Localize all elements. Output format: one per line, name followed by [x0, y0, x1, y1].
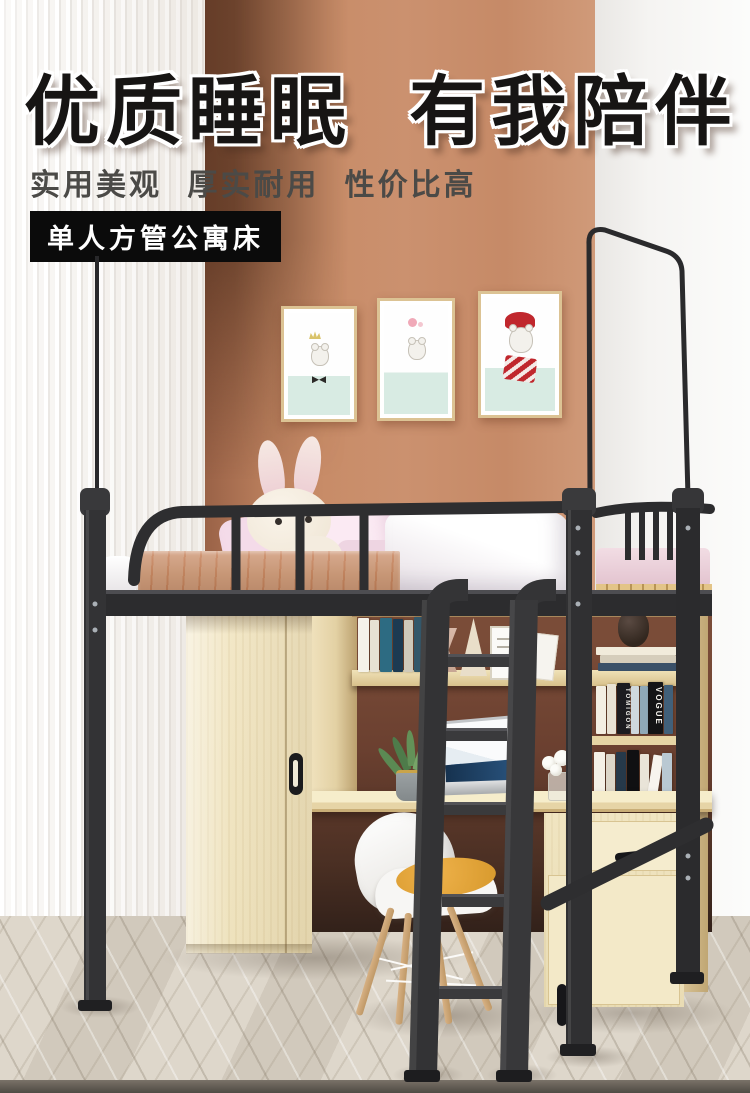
book-spine-label: TOMIGON	[617, 688, 630, 731]
potted-plant	[386, 726, 434, 800]
canopy-pole-left	[95, 256, 99, 494]
drawer-unit	[544, 813, 684, 1007]
bed-slats	[596, 584, 712, 597]
book-spine	[596, 686, 606, 734]
poster-headline: 优质睡眠 有我陪伴	[24, 50, 737, 160]
print-art	[288, 313, 350, 415]
white-bloom	[550, 764, 562, 776]
rabbit-eye	[275, 518, 282, 525]
framed-print-small	[490, 626, 525, 680]
book-spine-tomigon: TOMIGON	[617, 683, 630, 734]
book-spine	[640, 686, 648, 734]
wardrobe-base-shadow	[186, 944, 312, 954]
cabinet-door	[548, 875, 680, 1005]
floor-edge	[0, 1080, 750, 1093]
stacked-book	[598, 663, 678, 671]
laptop-screen	[441, 715, 523, 790]
stacked-book	[600, 655, 676, 663]
chair-leg	[446, 905, 493, 1012]
bed-side-wood-panel	[138, 551, 400, 595]
rolled-bedding	[94, 556, 142, 594]
bear-icon	[509, 327, 533, 353]
book-spine	[404, 620, 413, 672]
glass-vase	[548, 772, 572, 801]
bookshelf-board	[584, 736, 684, 745]
wardrobe-handle	[289, 753, 303, 795]
laptop-keyboard	[432, 779, 532, 795]
bowtie-icon	[312, 376, 326, 383]
cabinet-door-handle	[557, 984, 567, 1026]
white-bloom	[566, 758, 578, 770]
wall-print-bear-crown	[281, 306, 357, 422]
bear-icon	[311, 346, 329, 366]
red-scarf-icon	[502, 355, 537, 383]
laptop-display-window	[451, 764, 461, 778]
laptop	[432, 718, 532, 804]
book-spine	[607, 684, 616, 734]
book-spine	[358, 618, 369, 672]
floor-shadow	[60, 996, 140, 1018]
crown-icon	[309, 331, 321, 339]
flower-icon	[408, 318, 417, 327]
book-spine	[380, 618, 392, 672]
white-bed-sheet	[385, 512, 570, 597]
chair-leg	[430, 913, 453, 1025]
book-spine-label: VOGUE	[648, 687, 663, 726]
book-spine	[631, 686, 639, 734]
dark-vase	[618, 610, 649, 647]
wall-print-bear-hat-scarf	[478, 291, 562, 418]
pink-mattress	[596, 548, 710, 588]
canopy-pole-joint	[91, 490, 103, 499]
wall-print-bear-flower	[377, 298, 455, 421]
flower-vase	[538, 748, 580, 800]
poster-subtitle: 实用美观 厚实耐用 性价比高	[30, 160, 477, 204]
floor-shadow	[545, 1046, 635, 1068]
plant-pot	[396, 770, 424, 801]
stacked-book	[596, 647, 678, 655]
nook-side-panel	[310, 598, 357, 812]
desk-chair	[350, 810, 508, 1028]
product-poster: 优质睡眠 有我陪伴 实用美观 厚实耐用 性价比高 单人方管公寓床	[0, 0, 750, 1093]
product-badge: 单人方管公寓床	[30, 211, 281, 262]
book-spine	[370, 620, 379, 672]
drawer	[572, 821, 680, 871]
book-spine	[393, 619, 403, 672]
laptop-display	[444, 718, 520, 786]
bear-icon	[408, 340, 426, 360]
book-spine	[664, 685, 673, 734]
print-art	[384, 305, 448, 414]
book-spine-vogue: VOGUE	[648, 682, 663, 734]
drawer-handle	[615, 851, 642, 863]
rabbit-eye	[305, 516, 312, 523]
print-art	[485, 298, 555, 411]
